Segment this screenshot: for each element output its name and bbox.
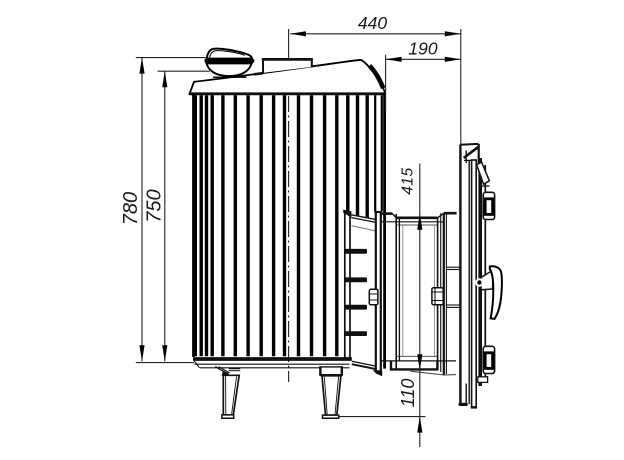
svg-text:780: 780	[120, 192, 142, 225]
svg-text:440: 440	[358, 13, 387, 33]
svg-text:415: 415	[400, 167, 417, 194]
svg-text:110: 110	[398, 379, 418, 408]
svg-text:750: 750	[144, 189, 166, 222]
svg-text:190: 190	[408, 39, 437, 59]
